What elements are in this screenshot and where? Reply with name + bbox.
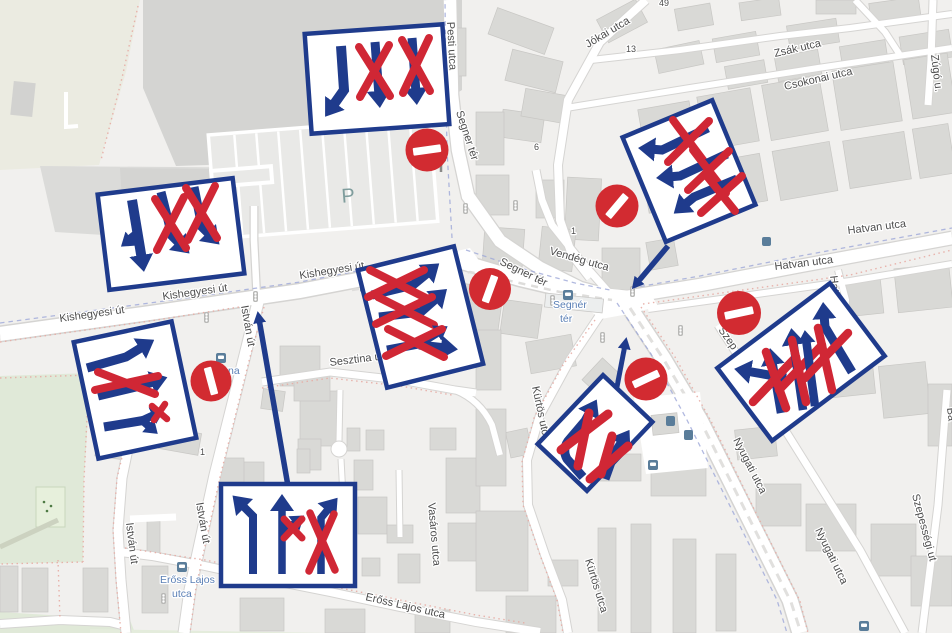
- svg-text:49: 49: [659, 0, 669, 8]
- svg-text:Erőss Lajos: Erőss Lajos: [160, 574, 215, 586]
- svg-text:Segnér: Segnér: [553, 299, 587, 311]
- svg-text:P: P: [341, 185, 356, 208]
- svg-text:1: 1: [571, 226, 576, 236]
- svg-text:1: 1: [200, 447, 205, 457]
- svg-text:6: 6: [534, 142, 539, 152]
- svg-text:utca: utca: [172, 588, 192, 600]
- svg-text:tér: tér: [560, 313, 573, 325]
- svg-text:13: 13: [626, 44, 636, 54]
